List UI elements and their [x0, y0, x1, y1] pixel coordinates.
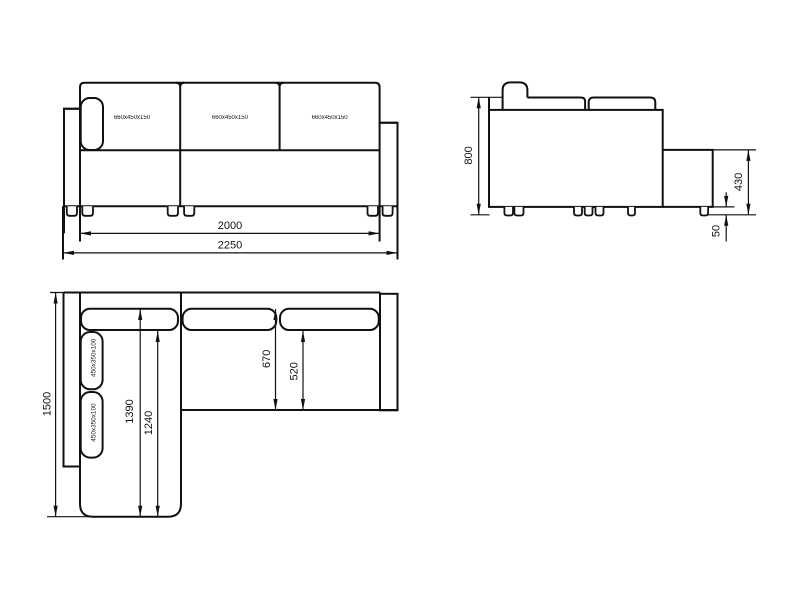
svg-text:1240: 1240: [143, 411, 155, 435]
svg-text:660x450x150: 660x450x150: [212, 115, 249, 121]
svg-text:450x350x100: 450x350x100: [90, 403, 97, 442]
svg-text:800: 800: [463, 146, 475, 164]
svg-text:1500: 1500: [41, 392, 53, 416]
svg-text:520: 520: [289, 362, 301, 380]
svg-text:660x450x150: 660x450x150: [114, 115, 151, 121]
svg-text:50: 50: [711, 225, 723, 237]
svg-text:430: 430: [733, 173, 745, 191]
svg-text:660x450x150: 660x450x150: [312, 115, 349, 121]
svg-text:450x350x100: 450x350x100: [90, 338, 97, 377]
svg-text:2000: 2000: [218, 220, 242, 232]
svg-text:2250: 2250: [218, 240, 242, 252]
svg-text:1390: 1390: [124, 399, 136, 423]
svg-text:670: 670: [261, 350, 273, 368]
